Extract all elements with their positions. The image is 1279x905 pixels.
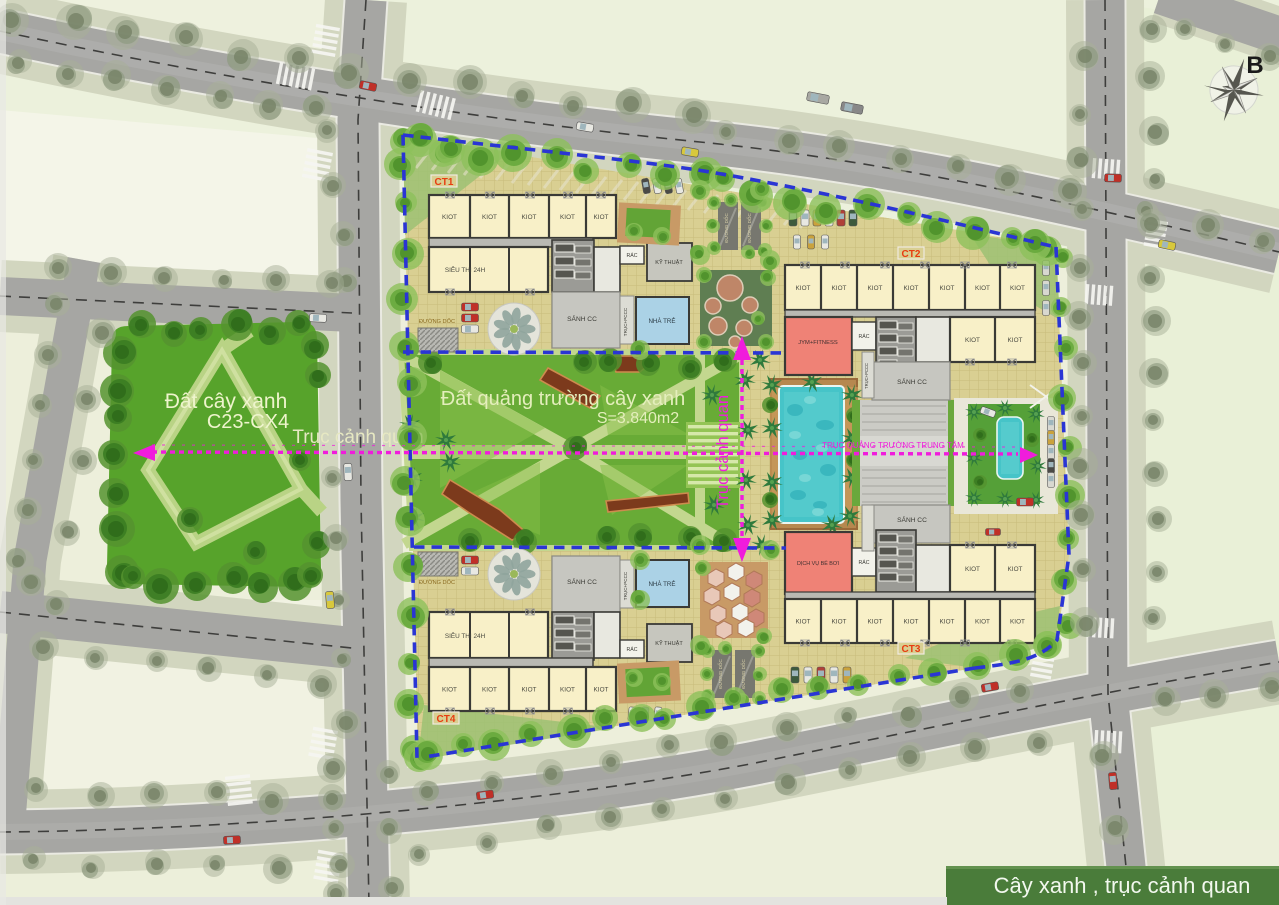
- svg-text:ĐƯỜNG DỐC: ĐƯỜNG DỐC: [419, 318, 455, 325]
- svg-text:KIOT: KIOT: [965, 337, 980, 344]
- svg-text:Cây xanh , trục cảnh quan: Cây xanh , trục cảnh quan: [994, 873, 1251, 898]
- svg-text:ĐƯỜNG DỐC: ĐƯỜNG DỐC: [717, 659, 723, 689]
- svg-text:S=3.840m2: S=3.840m2: [597, 410, 679, 427]
- svg-text:KIOT: KIOT: [1008, 337, 1023, 344]
- svg-text:SẢNH CC: SẢNH CC: [567, 314, 597, 323]
- svg-text:ĐƯỜNG DỐC: ĐƯỜNG DỐC: [723, 213, 729, 243]
- svg-text:SIÊU THỊ 24H: SIÊU THỊ 24H: [445, 265, 486, 274]
- svg-text:KIOT: KIOT: [868, 285, 883, 292]
- svg-text:KIOT: KIOT: [522, 214, 537, 221]
- svg-text:NHÀ TRẺ: NHÀ TRẺ: [648, 581, 675, 588]
- svg-text:B: B: [1246, 52, 1263, 79]
- svg-text:CT1: CT1: [435, 177, 454, 188]
- svg-text:KIOT: KIOT: [904, 619, 919, 626]
- svg-text:SIÊU THỊ 24H: SIÊU THỊ 24H: [445, 631, 486, 640]
- svg-text:KIOT: KIOT: [1008, 566, 1023, 573]
- svg-text:C23-CX4: C23-CX4: [207, 411, 289, 433]
- svg-text:KIOT: KIOT: [940, 619, 955, 626]
- svg-text:KIOT: KIOT: [482, 214, 497, 221]
- svg-text:TRỤC QUẢNG TRƯỜNG TRUNG TÂM: TRỤC QUẢNG TRƯỜNG TRUNG TÂM: [822, 441, 964, 450]
- svg-text:KIOT: KIOT: [796, 285, 811, 292]
- svg-text:CT4: CT4: [437, 714, 456, 725]
- svg-text:KIOT: KIOT: [940, 285, 955, 292]
- svg-text:KIOT: KIOT: [1010, 619, 1025, 626]
- svg-text:KỸ THUẬT: KỸ THUẬT: [655, 259, 683, 266]
- svg-text:KIOT: KIOT: [868, 619, 883, 626]
- svg-text:KIOT: KIOT: [975, 619, 990, 626]
- svg-text:KIOT: KIOT: [975, 285, 990, 292]
- svg-text:SẢNH CC: SẢNH CC: [567, 577, 597, 586]
- svg-text:RÁC: RÁC: [859, 333, 870, 340]
- svg-text:Trục cảnh quan: Trục cảnh quan: [714, 395, 732, 509]
- svg-text:DỊCH VỤ BỂ BƠI: DỊCH VỤ BỂ BƠI: [797, 560, 839, 567]
- svg-text:KIOT: KIOT: [560, 687, 575, 694]
- svg-text:SẢNH CC: SẢNH CC: [897, 377, 927, 386]
- svg-text:KIOT: KIOT: [482, 687, 497, 694]
- svg-text:Đất quảng trường cây xanh: Đất quảng trường cây xanh: [441, 388, 685, 410]
- svg-text:KIOT: KIOT: [1010, 285, 1025, 292]
- svg-text:NHÀ TRẺ: NHÀ TRẺ: [648, 318, 675, 325]
- svg-text:KIOT: KIOT: [832, 285, 847, 292]
- svg-text:JYM+FITNESS: JYM+FITNESS: [798, 340, 838, 346]
- svg-text:TRỤC+PCCC: TRỤC+PCCC: [623, 307, 628, 336]
- svg-text:KIOT: KIOT: [442, 687, 457, 694]
- svg-text:CT3: CT3: [902, 644, 921, 655]
- svg-text:ĐƯỜNG DỐC: ĐƯỜNG DỐC: [746, 213, 752, 243]
- svg-text:KIOT: KIOT: [522, 687, 537, 694]
- svg-text:Đất cây xanh: Đất cây xanh: [165, 390, 288, 413]
- svg-text:SẢNH CC: SẢNH CC: [897, 515, 927, 524]
- svg-text:CT2: CT2: [902, 249, 921, 260]
- svg-text:TRỤC+PCCC: TRỤC+PCCC: [864, 363, 869, 389]
- svg-text:RÁC: RÁC: [627, 252, 638, 259]
- svg-text:ĐƯỜNG DỐC: ĐƯỜNG DỐC: [740, 659, 746, 689]
- svg-text:KIOT: KIOT: [594, 687, 609, 694]
- svg-text:KIOT: KIOT: [796, 619, 811, 626]
- svg-text:KIOT: KIOT: [832, 619, 847, 626]
- svg-text:RÁC: RÁC: [859, 559, 870, 566]
- svg-text:KIOT: KIOT: [560, 214, 575, 221]
- svg-text:ĐƯỜNG DỐC: ĐƯỜNG DỐC: [419, 579, 455, 586]
- svg-text:KIOT: KIOT: [965, 566, 980, 573]
- svg-text:RÁC: RÁC: [627, 646, 638, 653]
- svg-text:KIOT: KIOT: [904, 285, 919, 292]
- svg-text:KIOT: KIOT: [594, 214, 609, 221]
- svg-text:TRỤC+PCCC: TRỤC+PCCC: [623, 571, 628, 600]
- svg-text:KIOT: KIOT: [442, 214, 457, 221]
- svg-text:KỸ THUẬT: KỸ THUẬT: [655, 640, 683, 647]
